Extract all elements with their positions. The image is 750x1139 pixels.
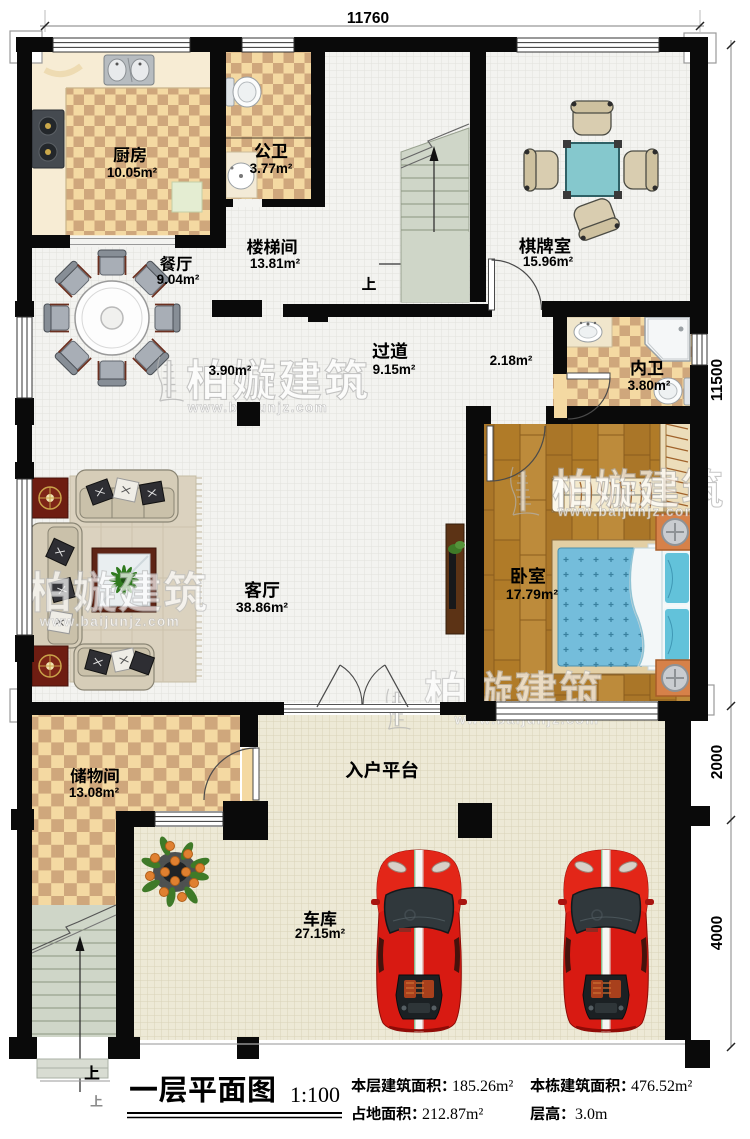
svg-text:www.baijunjz.com: www.baijunjz.com <box>39 614 181 629</box>
svg-text:www.baijunjz.com: www.baijunjz.com <box>557 504 699 519</box>
svg-text:212.87m²: 212.87m² <box>422 1106 483 1123</box>
svg-text:185.26m²: 185.26m² <box>452 1078 513 1095</box>
svg-text:476.52m²: 476.52m² <box>631 1078 692 1095</box>
svg-text:10.05m²: 10.05m² <box>107 165 158 180</box>
svg-text:17.79m²: 17.79m² <box>506 586 558 602</box>
svg-text:3.80m²: 3.80m² <box>628 378 671 393</box>
svg-text:1:100: 1:100 <box>290 1082 340 1107</box>
svg-text:13.08m²: 13.08m² <box>69 785 120 800</box>
svg-text:3.90m²: 3.90m² <box>209 363 252 378</box>
svg-text:27.15m²: 27.15m² <box>295 926 346 941</box>
svg-text:38.86m²: 38.86m² <box>236 599 288 615</box>
svg-text:11500: 11500 <box>709 359 726 401</box>
svg-text:3.0m: 3.0m <box>575 1106 608 1123</box>
svg-text:15.96m²: 15.96m² <box>523 254 574 269</box>
svg-text:3.77m²: 3.77m² <box>250 161 293 176</box>
svg-text:11760: 11760 <box>347 10 389 27</box>
svg-text:9.04m²: 9.04m² <box>157 272 200 287</box>
svg-text:13.81m²: 13.81m² <box>250 256 301 271</box>
svg-text:9.15m²: 9.15m² <box>373 362 416 377</box>
svg-text:2000: 2000 <box>709 745 726 779</box>
svg-text:2.18m²: 2.18m² <box>490 353 533 368</box>
svg-text:4000: 4000 <box>709 916 726 950</box>
